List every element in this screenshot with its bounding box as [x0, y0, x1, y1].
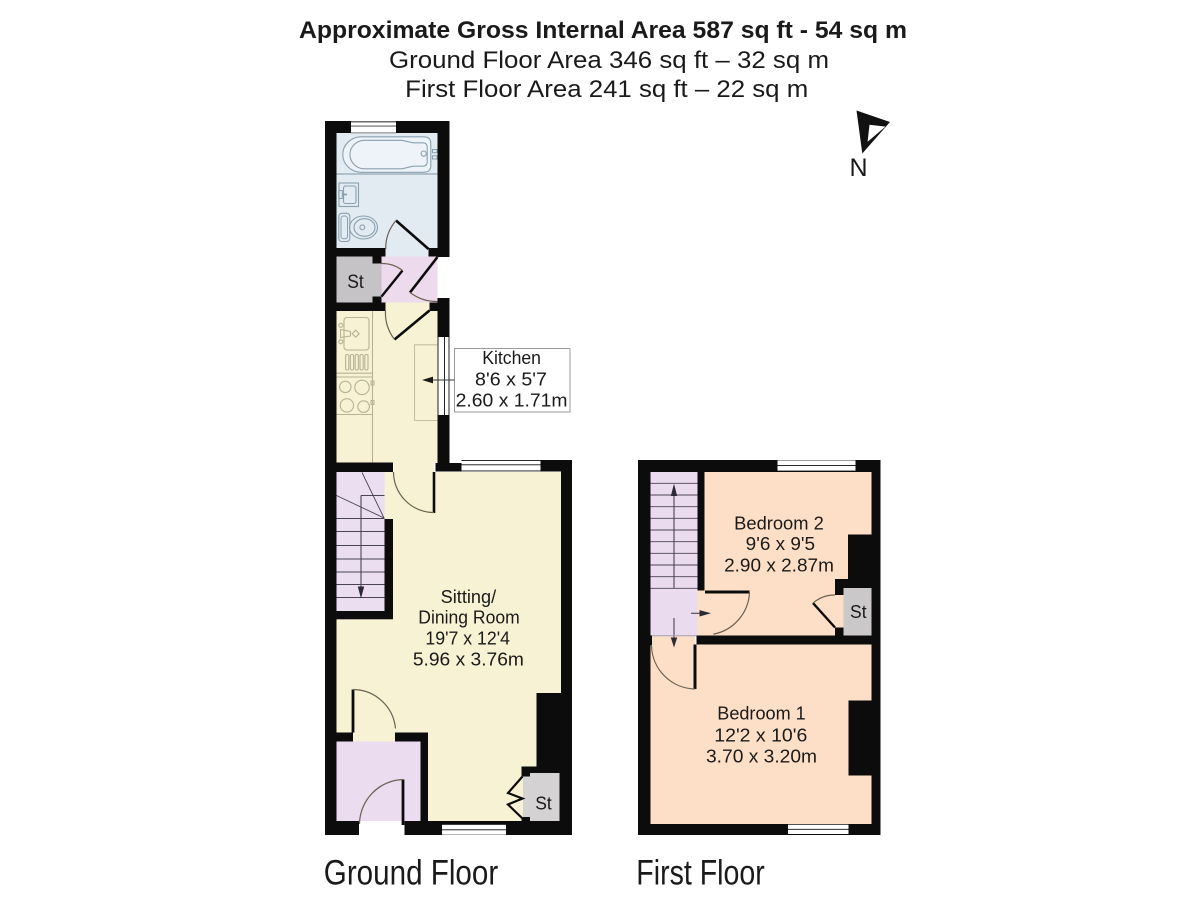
svg-text:Bedroom 1: Bedroom 1 [717, 704, 806, 724]
svg-text:First Floor: First Floor [636, 854, 765, 893]
svg-text:2.90 x 2.87m: 2.90 x 2.87m [724, 555, 834, 575]
svg-text:2.60 x 1.71m: 2.60 x 1.71m [456, 390, 568, 410]
svg-text:Ground Floor Area 346 sq ft –: Ground Floor Area 346 sq ft – 32 sq m [389, 47, 829, 74]
svg-text:Approximate Gross Internal Are: Approximate Gross Internal Area 587 sq f… [299, 17, 907, 44]
svg-text:9'6 x 9'5: 9'6 x 9'5 [746, 534, 815, 554]
svg-text:Sitting/: Sitting/ [441, 587, 497, 607]
svg-text:Kitchen: Kitchen [482, 348, 541, 368]
svg-text:First Floor Area 241 sq ft – 2: First Floor Area 241 sq ft – 22 sq m [405, 76, 808, 103]
svg-text:Ground Floor: Ground Floor [324, 854, 499, 893]
svg-text:St: St [347, 272, 364, 293]
svg-text:12'2 x 10'6: 12'2 x 10'6 [714, 725, 807, 745]
svg-text:St: St [850, 602, 867, 622]
svg-text:St: St [535, 794, 552, 814]
svg-text:3.70 x 3.20m: 3.70 x 3.20m [706, 747, 817, 767]
svg-text:8'6 x 5'7: 8'6 x 5'7 [475, 369, 547, 389]
svg-text:19'7 x 12'4: 19'7 x 12'4 [425, 628, 510, 648]
svg-text:Dining Room: Dining Room [418, 608, 519, 628]
svg-text:N: N [849, 154, 867, 182]
svg-text:Bedroom 2: Bedroom 2 [734, 513, 824, 533]
svg-text:5.96 x 3.76m: 5.96 x 3.76m [413, 649, 524, 669]
